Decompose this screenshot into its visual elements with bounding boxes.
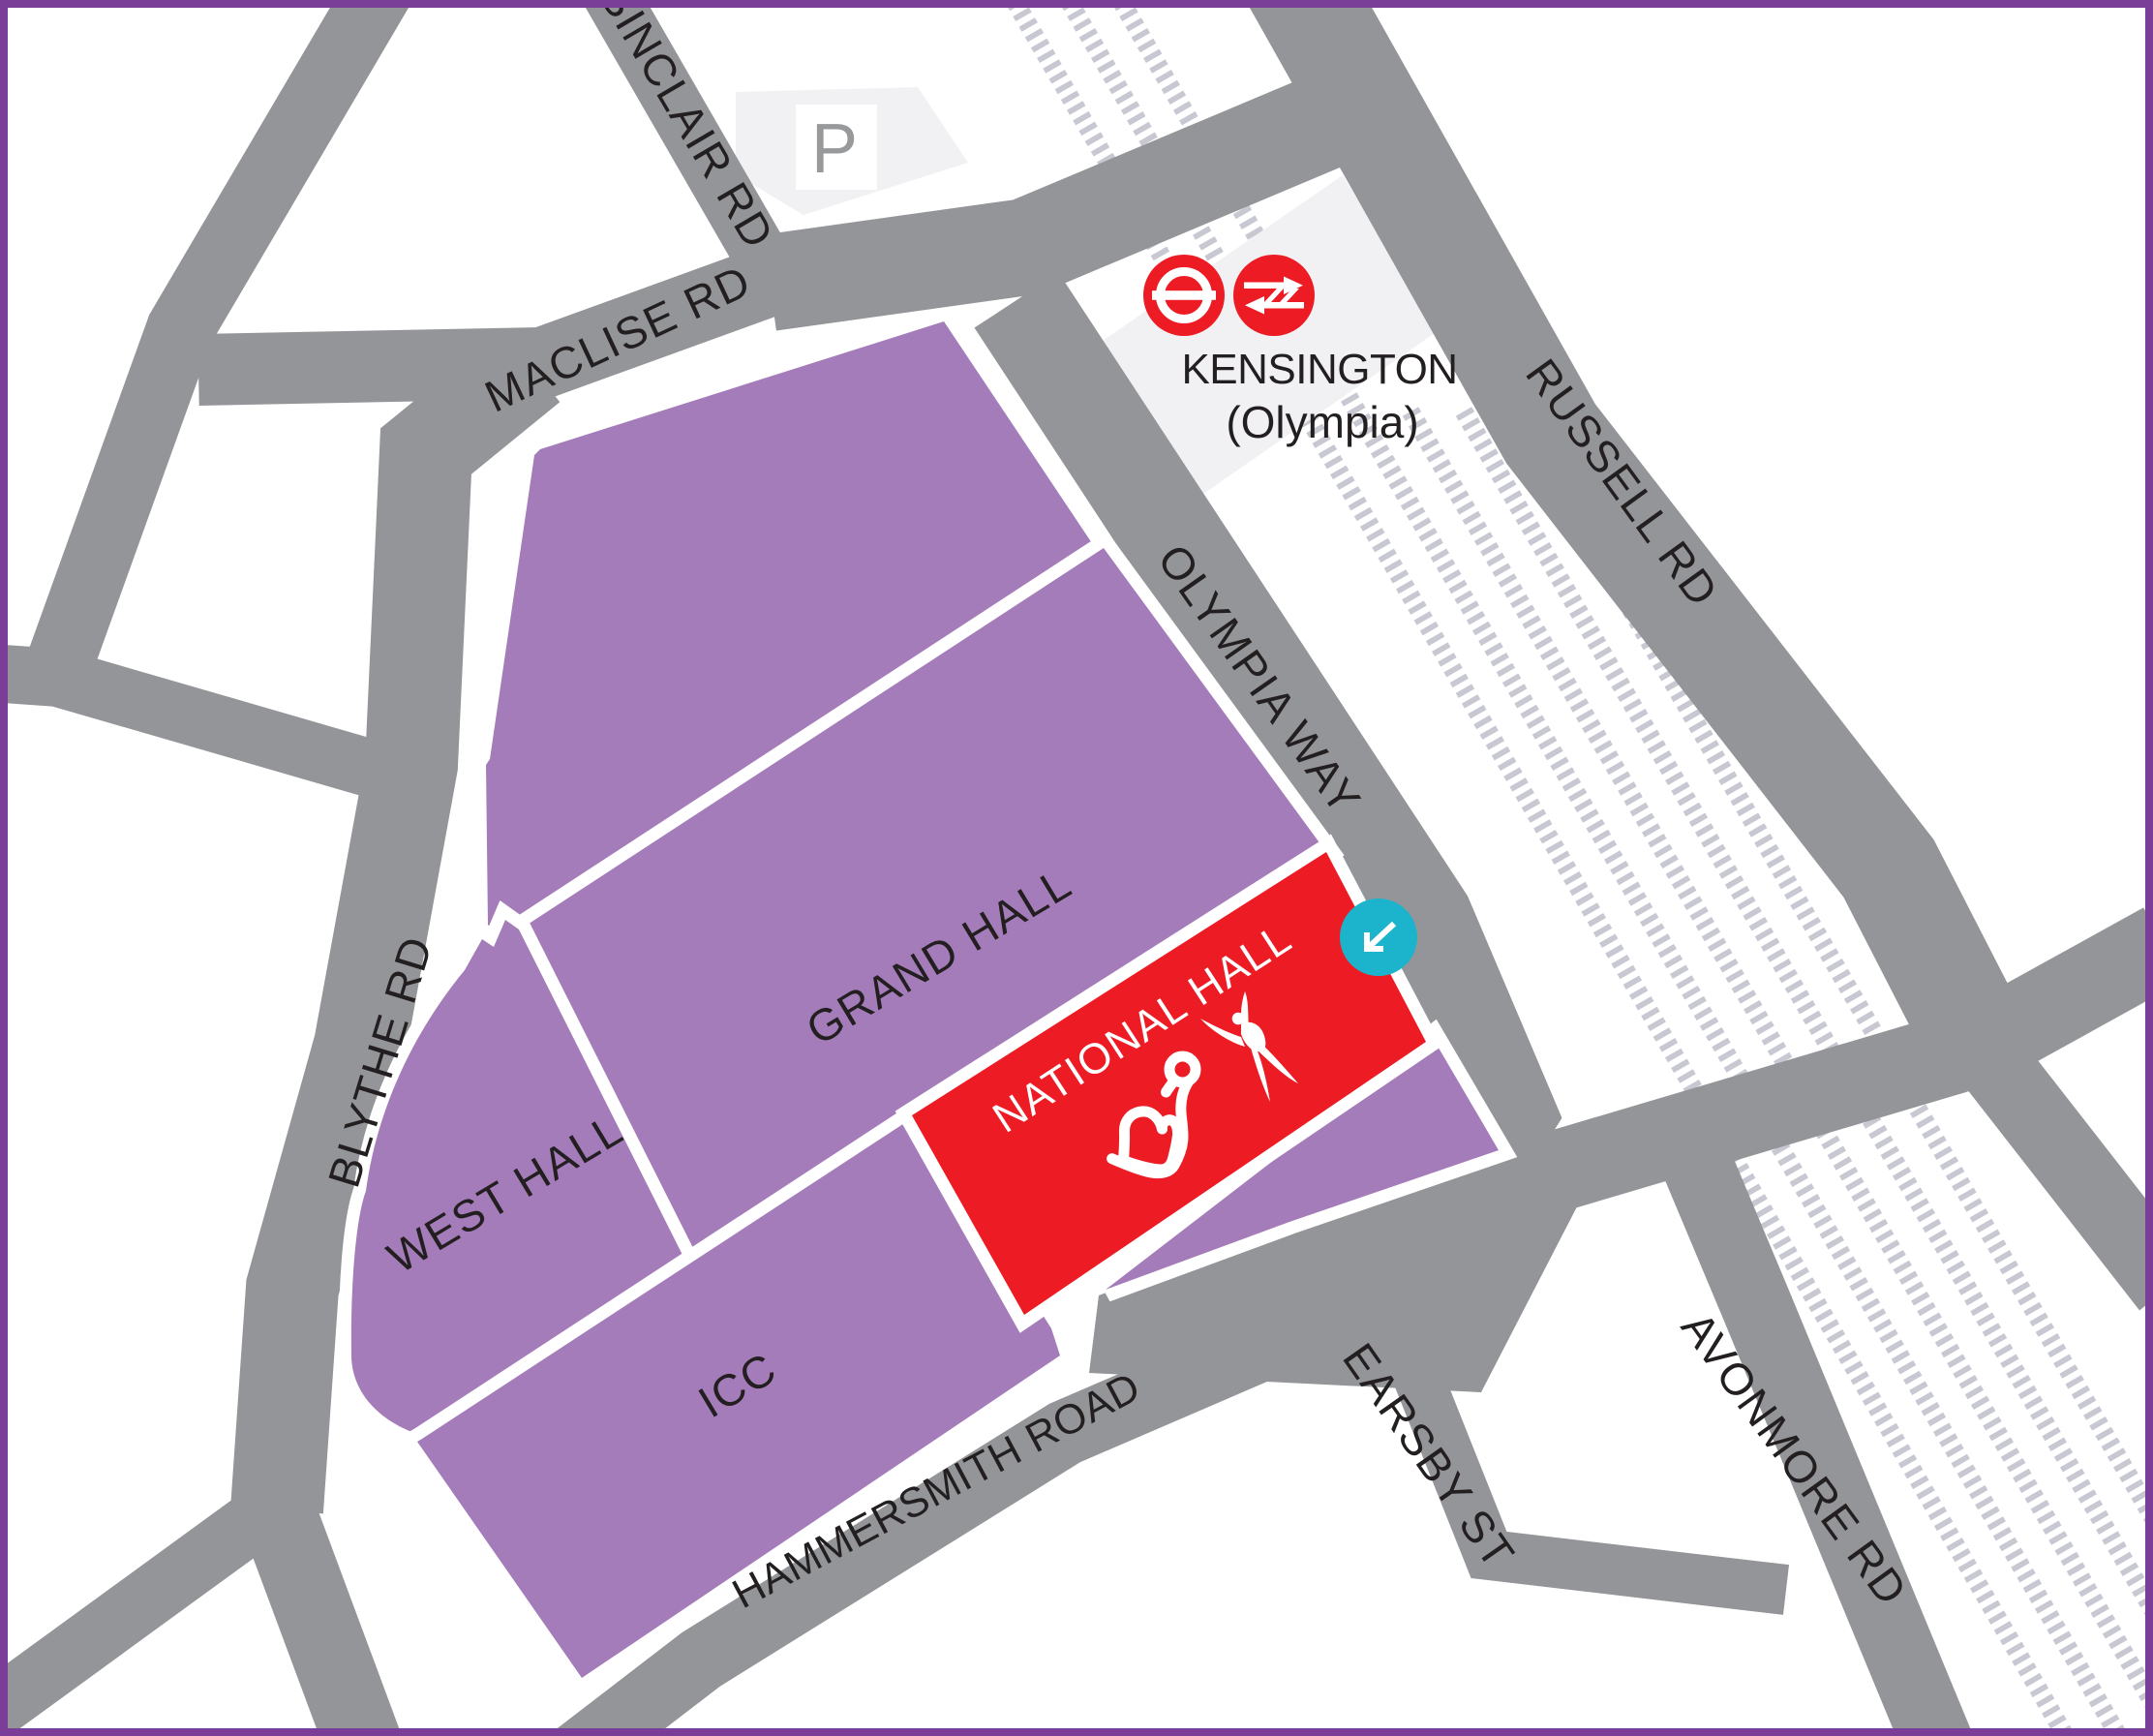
svg-text:P: P: [811, 110, 858, 188]
svg-text:(Olympia): (Olympia): [1226, 397, 1418, 447]
svg-text:KENSINGTON: KENSINGTON: [1181, 346, 1457, 393]
